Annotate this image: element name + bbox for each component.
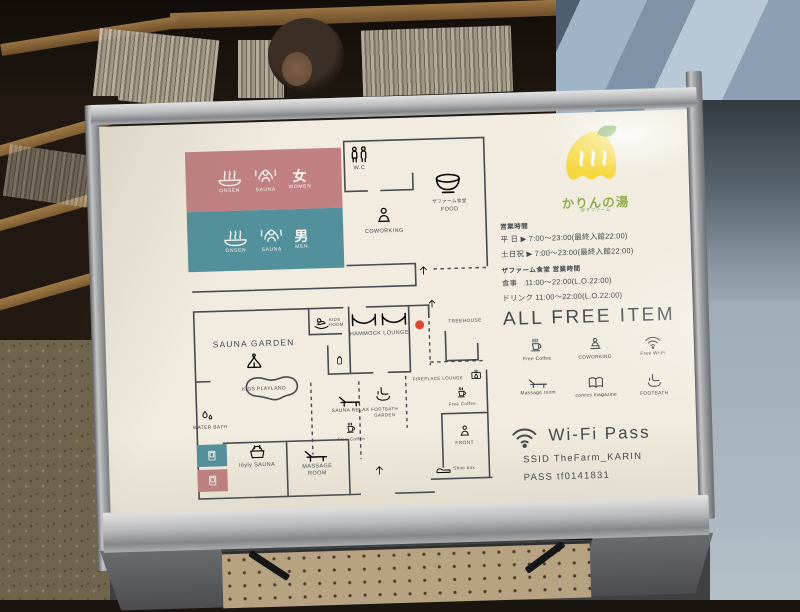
arrow-up-icon <box>424 295 439 312</box>
entrance-men <box>197 444 228 467</box>
coffee-icon <box>344 420 359 435</box>
massage-lounger-icon <box>301 446 331 463</box>
restaurant-hours: ザファーム食堂 営業時間 食事 11:00〜22:00(L.O.22:00) ド… <box>501 261 622 307</box>
free-item-label: FOOTBATH <box>640 391 668 398</box>
free-item-label: Free Wi-Fi <box>640 351 666 358</box>
coworking-label: COWORKING <box>362 228 406 236</box>
wc-people-icon <box>347 145 372 164</box>
front-person-icon <box>456 422 473 439</box>
onsen-label: ONSEN <box>219 188 240 195</box>
restaurant-hours-title: ザファーム食堂 営業時間 <box>501 261 621 275</box>
tent-sauna-icon <box>242 350 267 373</box>
free-item: FOOTBATH <box>625 372 684 408</box>
free-item: comics magazine <box>567 373 626 409</box>
wc-label: W.C <box>344 165 374 173</box>
sauna-person-icon <box>252 167 279 187</box>
loyly-bucket-icon <box>247 444 268 461</box>
free-item: Free Wi-Fi <box>623 332 682 368</box>
hammock-icon <box>350 310 379 329</box>
coffee-icon <box>527 336 547 356</box>
footbath-garden-label: FOOTBATH GARDEN <box>366 406 404 418</box>
men-label: MEN <box>295 243 308 249</box>
free-coffee-label: Free Coffee <box>334 436 368 443</box>
comics-book-icon <box>586 374 606 392</box>
loyly-sauna-label: löyly SAUNA <box>235 462 279 470</box>
shoe-box-label: Shoe box <box>453 464 487 471</box>
front-label: FRONT <box>449 441 481 448</box>
coworking-person-icon <box>372 204 397 226</box>
hours-weekday: 平 日 ▶ 7:00〜23:00(最終入館22:00) <box>500 230 633 245</box>
door-icon <box>205 448 219 462</box>
drink-bottle-icon <box>333 350 347 371</box>
massage-room-label: MASSAGE ROOM <box>295 463 339 478</box>
onsen-icon <box>216 168 243 188</box>
footbath-icon <box>373 384 394 405</box>
wifi-icon <box>508 422 541 449</box>
onsen-icon <box>222 227 249 247</box>
water-bath-label: WATER BATH <box>192 425 228 432</box>
free-item-label: Free Coffee <box>523 357 552 364</box>
arrow-up-icon <box>415 261 432 279</box>
onsen-label: ONSEN <box>225 248 246 255</box>
free-item-label: COWORKING <box>578 355 612 362</box>
entrance-women <box>197 469 228 492</box>
free-item-label: Massage room <box>520 390 555 397</box>
footbath-icon <box>644 372 663 390</box>
wifi-pass-title: Wi-Fi Pass <box>548 423 651 446</box>
free-item: COWORKING <box>565 333 624 369</box>
free-item-label: comics magazine <box>575 393 617 400</box>
hours-weekend: 土日祝 ▶ 7:00〜23:00(最終入館22:00) <box>501 245 634 260</box>
sauna-label: SAUNA <box>255 187 275 194</box>
sauna-label: SAUNA <box>262 246 282 253</box>
men-kanji: 男 <box>294 228 308 242</box>
person-face <box>282 52 312 86</box>
sauna-person-icon <box>258 226 285 246</box>
opening-hours: 営業時間 平 日 ▶ 7:00〜23:00(最終入館22:00) 土日祝 ▶ 7… <box>500 217 634 263</box>
karin-logo <box>559 125 629 191</box>
water-drops-icon <box>199 407 216 424</box>
women-label: WOMEN <box>288 183 311 190</box>
shoe-icon <box>435 463 452 474</box>
restaurant-meal: 食事 11:00〜22:00(L.O.22:00) <box>502 274 622 289</box>
stand-side-right <box>575 533 713 597</box>
door-icon <box>205 473 219 487</box>
wifi-icon <box>642 332 662 350</box>
sign-board: ONSEN SAUNA 女 WOMEN ONSEN SAUNA 男 MEN W.… <box>82 71 719 609</box>
hammock-icon <box>380 309 409 328</box>
massage-lounger-icon <box>526 376 550 390</box>
restaurant-drink: ドリンク 11:00〜22:00(L.O.22:00) <box>502 289 622 304</box>
food-bowl-icon <box>432 168 463 196</box>
arrow-up-icon <box>371 460 388 479</box>
sign-face: ONSEN SAUNA 女 WOMEN ONSEN SAUNA 男 MEN W.… <box>99 109 698 514</box>
photo-scene: ONSEN SAUNA 女 WOMEN ONSEN SAUNA 男 MEN W.… <box>0 0 800 600</box>
zone-men: ONSEN SAUNA 男 MEN <box>187 208 345 273</box>
zone-women: ONSEN SAUNA 女 WOMEN <box>185 148 343 213</box>
free-coffee-label: Free Coffee <box>445 401 479 408</box>
free-item: Free Coffee <box>507 335 566 371</box>
relax-lounger-icon <box>335 392 363 408</box>
stand-side-left <box>100 547 241 610</box>
fireplace-icon <box>468 368 483 382</box>
free-items-grid: Free Coffee COWORKING Free Wi-Fi Massage… <box>507 332 683 411</box>
free-item: Massage room <box>509 375 568 411</box>
coffee-icon <box>455 385 470 400</box>
coworking-icon <box>585 334 605 354</box>
women-kanji: 女 <box>292 168 306 182</box>
